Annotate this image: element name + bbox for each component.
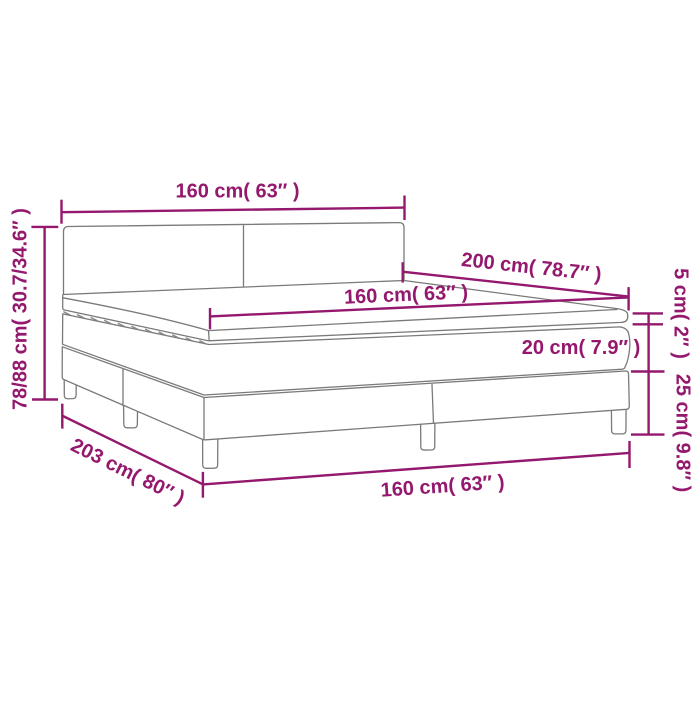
svg-text:25 cm( 9.8″ ): 25 cm( 9.8″ ) (672, 374, 694, 493)
svg-text:20 cm( 7.9″ ): 20 cm( 7.9″ ) (522, 337, 641, 359)
svg-text:160 cm( 63″ ): 160 cm( 63″ ) (175, 181, 299, 203)
svg-text:5 cm( 2″ ): 5 cm( 2″ ) (670, 268, 692, 359)
svg-text:78/88 cm( 30.7/34.6″ ): 78/88 cm( 30.7/34.6″ ) (10, 208, 32, 410)
